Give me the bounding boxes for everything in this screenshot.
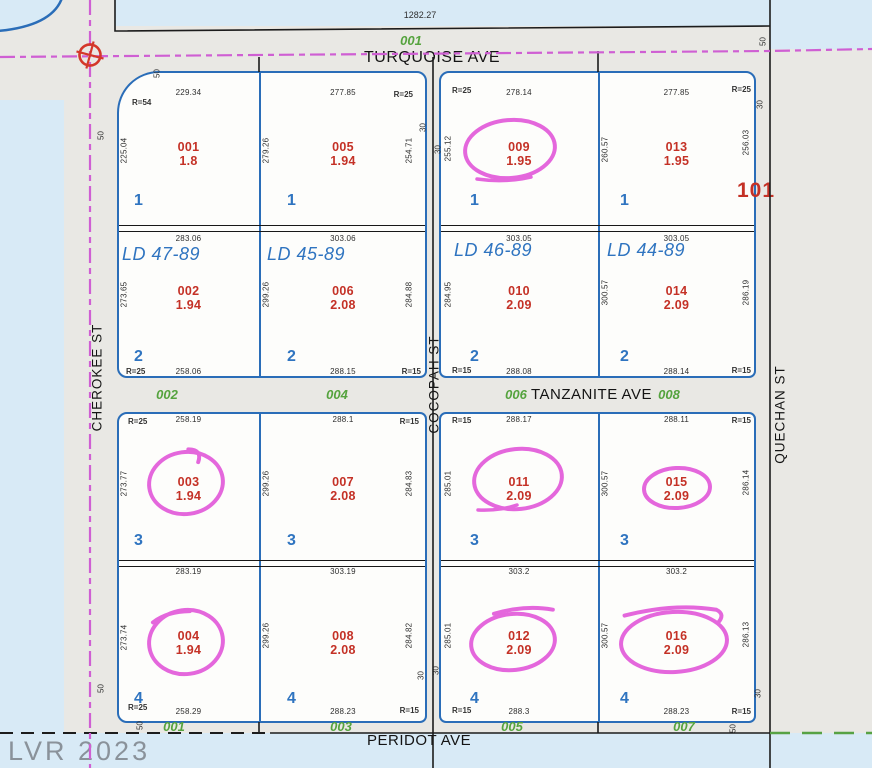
- lot-number-acreage: 0072.08: [259, 475, 427, 503]
- lot-011: 288.17 285.01 R=15 0112.09 3: [440, 413, 598, 562]
- lot-007: 288.1 299.26 284.83 R=15 0072.08 3: [259, 413, 427, 562]
- radius-label: R=15: [732, 366, 751, 375]
- lot-acres: 2.08: [259, 643, 427, 657]
- radius-label: R=25: [126, 367, 145, 376]
- dim-top: 303.2: [440, 567, 598, 576]
- lot-acres: 2.09: [598, 643, 755, 657]
- corner-radius-label: R=54: [24, 8, 43, 17]
- road-segment-label: 008: [639, 387, 699, 402]
- lot-014: 303.05 LD 44-89 300.57 286.19 288.14 R=1…: [598, 232, 755, 378]
- block-number: 1: [287, 192, 296, 210]
- radius-label: R=25: [128, 417, 147, 426]
- lot-apn: 014: [598, 284, 755, 298]
- lot-006: 303.06 LD 45-89 299.26 284.88 288.15 R=1…: [259, 232, 427, 378]
- lot-acres: 1.94: [118, 298, 259, 312]
- street-peridot-ave: PERIDOT AVE: [367, 732, 471, 749]
- boundary-dimension: 1282.27: [395, 10, 445, 20]
- radius-label: R=25: [394, 90, 413, 99]
- row-width-marker: 50: [97, 116, 106, 156]
- block-number: 3: [470, 532, 479, 550]
- lot-acres: 1.94: [118, 643, 259, 657]
- radius-label: R=25: [732, 85, 751, 94]
- dim-top: 229.34: [118, 88, 259, 97]
- block-number: 4: [470, 690, 479, 708]
- lot-number-acreage: 0162.09: [598, 629, 755, 657]
- lot-apn: 005: [259, 140, 427, 154]
- lot-015: 288.11 300.57 286.14 R=15 0152.09 3: [598, 413, 755, 562]
- street-quechan-st: QUECHAN ST: [773, 335, 788, 495]
- ld-label: LD 44-89: [607, 240, 685, 261]
- dim-top: 283.19: [118, 567, 259, 576]
- radius-label: R=54: [132, 98, 151, 107]
- lot-number-acreage: 0041.94: [118, 629, 259, 657]
- row-width-marker: 30: [756, 85, 765, 125]
- radius-label: R=15: [452, 366, 471, 375]
- lot-010: 303.05 LD 46-89 284.95 288.08 R=15 0102.…: [440, 232, 598, 378]
- block-number: 2: [470, 348, 479, 366]
- lot-acres: 2.08: [259, 298, 427, 312]
- lot-apn: 008: [259, 629, 427, 643]
- lot-013: 277.85 260.57 256.03 R=25 0131.95 1: [598, 72, 755, 228]
- dim-top: 303.2: [598, 567, 755, 576]
- block-number: 2: [287, 348, 296, 366]
- lot-number-acreage: 0011.8: [118, 140, 259, 168]
- lot-012: 303.2 285.01 288.3 R=15 0122.09 4: [440, 565, 598, 722]
- ld-label: LD 46-89: [454, 240, 532, 261]
- radius-label: R=15: [732, 707, 751, 716]
- lot-number-acreage: 0102.09: [440, 284, 598, 312]
- road-segment-label: 002: [137, 387, 197, 402]
- lot-009: 278.14 255.12 R=25 0091.95 1: [440, 72, 598, 228]
- lot-008: 303.19 299.26 284.82 288.23 R=15 0082.08…: [259, 565, 427, 722]
- lot-acres: 2.09: [598, 489, 755, 503]
- ld-label: LD 45-89: [267, 244, 345, 265]
- dim-top: 303.06: [259, 234, 427, 243]
- radius-label: R=15: [400, 706, 419, 715]
- lot-number-acreage: 0082.08: [259, 629, 427, 657]
- lot-apn: 011: [440, 475, 598, 489]
- lot-apn: 004: [118, 629, 259, 643]
- lot-number-acreage: 0122.09: [440, 629, 598, 657]
- block-number: 1: [134, 192, 143, 210]
- lot-002: 283.06 LD 47-89 273.65 258.06 R=25 0021.…: [118, 232, 259, 378]
- road-segment-label: 006: [486, 387, 546, 402]
- lot-acres: 2.09: [440, 489, 598, 503]
- lot-apn: 015: [598, 475, 755, 489]
- radius-label: R=15: [732, 416, 751, 425]
- block-number: 4: [134, 690, 143, 708]
- block-number: 3: [287, 532, 296, 550]
- plat-map: TURQUOISE AVE TANZANITE AVE PERIDOT AVE …: [0, 0, 872, 768]
- lot-apn: 003: [118, 475, 259, 489]
- lot-apn: 009: [440, 140, 598, 154]
- lot-acres: 1.95: [440, 154, 598, 168]
- lot-number-acreage: 0152.09: [598, 475, 755, 503]
- lot-acres: 1.8: [118, 154, 259, 168]
- row-width-marker: 50: [97, 669, 106, 709]
- lot-acres: 2.09: [598, 298, 755, 312]
- street-tanzanite-ave: TANZANITE AVE: [531, 386, 652, 403]
- block-number: 4: [287, 690, 296, 708]
- lot-apn: 006: [259, 284, 427, 298]
- radius-label: R=15: [400, 417, 419, 426]
- lot-number-acreage: 0142.09: [598, 284, 755, 312]
- lot-apn: 007: [259, 475, 427, 489]
- ld-label: LD 47-89: [122, 244, 200, 265]
- lot-number-acreage: 0062.08: [259, 284, 427, 312]
- lot-acres: 2.08: [259, 489, 427, 503]
- lot-acres: 2.09: [440, 298, 598, 312]
- lot-016: 303.2 300.57 286.13 288.23 R=15 0162.09 …: [598, 565, 755, 722]
- street-cherokee-st: CHEROKEE ST: [90, 298, 105, 458]
- lot-acres: 1.94: [259, 154, 427, 168]
- block-number: 3: [620, 532, 629, 550]
- lot-apn: 012: [440, 629, 598, 643]
- lot-apn: 001: [118, 140, 259, 154]
- lot-number-acreage: 0031.94: [118, 475, 259, 503]
- row-width-marker: 50: [759, 22, 768, 62]
- radius-label: R=25: [452, 86, 471, 95]
- block-number: 2: [620, 348, 629, 366]
- dim-top: 283.06: [118, 234, 259, 243]
- block-number: 1: [470, 192, 479, 210]
- lot-number-acreage: 0051.94: [259, 140, 427, 168]
- street-turquoise-ave: TURQUOISE AVE: [364, 49, 500, 67]
- lot-005: 277.85 279.26 254.71 R=25 0051.94 1: [259, 72, 427, 228]
- road-segment-label: 001: [381, 33, 441, 48]
- block-number: 4: [620, 690, 629, 708]
- lot-apn: 016: [598, 629, 755, 643]
- lot-001: 229.34 225.04 R=54 0011.8 1: [118, 72, 259, 228]
- lot-number-acreage: 0091.95: [440, 140, 598, 168]
- lot-number-acreage: 0131.95: [598, 140, 755, 168]
- block-number: 1: [620, 192, 629, 210]
- radius-label: R=15: [452, 416, 471, 425]
- lot-004: 283.19 273.74 258.29 R=25 0041.94 4: [118, 565, 259, 722]
- lot-apn: 002: [118, 284, 259, 298]
- lot-acres: 1.95: [598, 154, 755, 168]
- lot-number-acreage: 0112.09: [440, 475, 598, 503]
- watermark-lvr: LVR 2023: [8, 736, 150, 767]
- lot-003: 258.19 273.77 R=25 0031.94 3: [118, 413, 259, 562]
- block-number: 3: [134, 532, 143, 550]
- block-number: 2: [134, 348, 143, 366]
- radius-label: R=15: [452, 706, 471, 715]
- lot-apn: 013: [598, 140, 755, 154]
- lot-acres: 1.94: [118, 489, 259, 503]
- lot-number-acreage: 0021.94: [118, 284, 259, 312]
- radius-label: R=15: [402, 367, 421, 376]
- lot-acres: 2.09: [440, 643, 598, 657]
- dim-top: 303.19: [259, 567, 427, 576]
- road-segment-label: 004: [307, 387, 367, 402]
- lot-apn: 010: [440, 284, 598, 298]
